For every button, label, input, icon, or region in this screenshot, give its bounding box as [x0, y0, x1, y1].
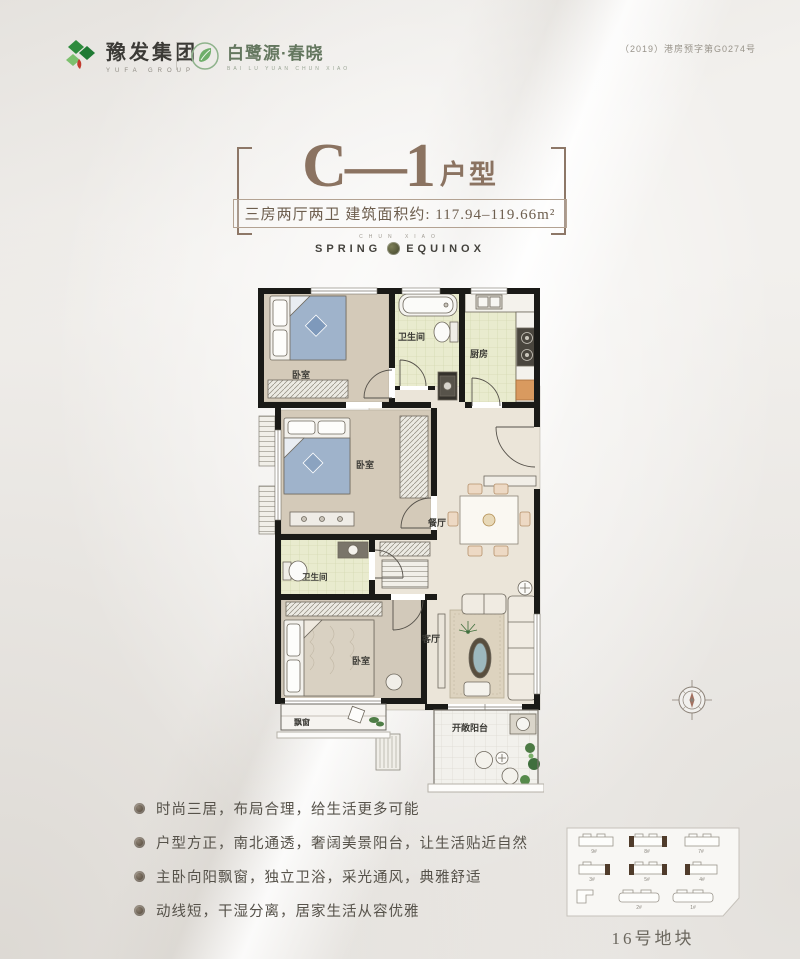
feature-text: 户型方正，南北通透，奢阔美景阳台，让生活贴近自然 — [156, 832, 528, 853]
wardrobe-bedroom1 — [268, 380, 348, 398]
feature-text: 主卧向阳飘窗，独立卫浴，采光通风，典雅舒适 — [156, 866, 482, 887]
project-logo: 白鹭源·春晓 BAI LU YUAN CHUN XIAO — [190, 39, 350, 72]
feature-item: 时尚三居，布局合理，给生活更多可能 — [134, 798, 528, 819]
group-logo-sub: YUFA GROUP — [106, 68, 198, 74]
wardrobe-bedroom2 — [400, 416, 428, 498]
label-bath1: 卫生间 — [398, 331, 425, 342]
feature-item: 主卧向阳飘窗，独立卫浴，采光通风，典雅舒适 — [134, 866, 528, 887]
emblem-seal-icon — [387, 242, 400, 255]
label-bay-window: 飘窗 — [294, 717, 310, 727]
feature-item: 动线短，干湿分离，居家生活从容优雅 — [134, 900, 528, 921]
brand-emblem-line: SPRING EQUINOX — [250, 242, 550, 255]
header-divider — [176, 42, 177, 70]
group-logo: 豫发集团 YUFA GROUP — [62, 36, 198, 74]
unit-code: C—1 — [302, 135, 434, 197]
svg-text:8#: 8# — [644, 849, 650, 855]
bullet-coin-icon — [134, 837, 145, 848]
feature-item: 户型方正，南北通透，奢阔美景阳台，让生活贴近自然 — [134, 832, 528, 853]
ac-platform-2 — [259, 486, 275, 534]
siteplan-map: 9# 8# 7# — [565, 826, 741, 923]
bed-bedroom2 — [284, 418, 350, 494]
feature-list: 时尚三居，布局合理，给生活更多可能 户型方正，南北通透，奢阔美景阳台，让生活贴近… — [134, 798, 528, 921]
label-bath2: 卫生间 — [302, 572, 328, 582]
project-logo-sub: BAI LU YUAN CHUN XIAO — [227, 66, 350, 72]
floorplan-drawing: 卧室 卫生间 厨房 卧室 卫生间 餐厅 客厅 卧室 飘窗 开敞阳台 — [254, 284, 544, 809]
toilet-bath1 — [434, 322, 458, 342]
unit-suffix: 户型 — [440, 153, 498, 197]
shoe-cabinet — [382, 560, 428, 588]
sideboard — [484, 476, 536, 486]
emblem-word-right: EQUINOX — [406, 243, 485, 255]
unit-title: C—1 户型 — [200, 135, 600, 197]
hall-cabinet — [380, 542, 430, 556]
svg-text:9#: 9# — [591, 849, 597, 855]
wardrobe-bedroom3 — [286, 602, 382, 616]
label-bedroom1: 卧室 — [292, 369, 310, 380]
coffee-table — [469, 638, 491, 678]
feature-text: 时尚三居，布局合理，给生活更多可能 — [156, 798, 420, 819]
ac-platform-1 — [259, 416, 275, 466]
label-balcony: 开敞阳台 — [452, 722, 488, 733]
clover-logo-icon — [62, 37, 98, 73]
bedroom3-chair — [386, 674, 402, 690]
label-bedroom3: 卧室 — [352, 655, 370, 666]
svg-text:5#: 5# — [644, 877, 650, 883]
svg-text:3#: 3# — [589, 877, 595, 883]
label-kitchen: 厨房 — [470, 348, 488, 359]
bathtub — [399, 294, 457, 316]
label-dining: 餐厅 — [427, 517, 446, 528]
sink-bath2 — [338, 542, 368, 558]
svg-text:1#: 1# — [690, 905, 696, 911]
washing-machine — [438, 372, 457, 400]
floorplan-poster: 豫发集团 YUFA GROUP 白鹭源·春晓 BAI LU YUAN CHUN … — [0, 0, 800, 959]
leaf-logo-icon — [190, 41, 220, 71]
bed-bedroom1 — [270, 296, 346, 360]
emblem-word-left: SPRING — [315, 243, 381, 255]
bullet-coin-icon — [134, 803, 145, 814]
bullet-coin-icon — [134, 871, 145, 882]
svg-text:7#: 7# — [698, 849, 704, 855]
floorplan-svg: 卧室 卫生间 厨房 卧室 卫生间 餐厅 客厅 卧室 飘窗 开敞阳台 — [254, 284, 544, 804]
bullet-coin-icon — [134, 905, 145, 916]
siteplan-caption: 16号地块 — [565, 924, 741, 949]
feature-text: 动线短，干湿分离，居家生活从容优雅 — [156, 900, 420, 921]
tv-cabinet — [438, 614, 445, 688]
presale-permit-number: （2019）港房预字第G0274号 — [620, 42, 756, 55]
balcony-sink — [510, 714, 536, 734]
label-living: 客厅 — [421, 633, 440, 644]
micro-caption: CHUN XIAO — [300, 234, 500, 240]
svg-text:2#: 2# — [636, 905, 642, 911]
group-logo-name: 豫发集团 — [106, 36, 198, 65]
label-bedroom2: 卧室 — [356, 459, 374, 470]
svg-text:4#: 4# — [699, 877, 705, 883]
unit-subtitle: 三房两厅两卫 建筑面积约: 117.94–119.66m² — [233, 199, 568, 228]
ottoman — [464, 682, 490, 696]
compass-icon — [670, 678, 714, 727]
project-logo-name: 白鹭源·春晓 — [227, 39, 350, 64]
